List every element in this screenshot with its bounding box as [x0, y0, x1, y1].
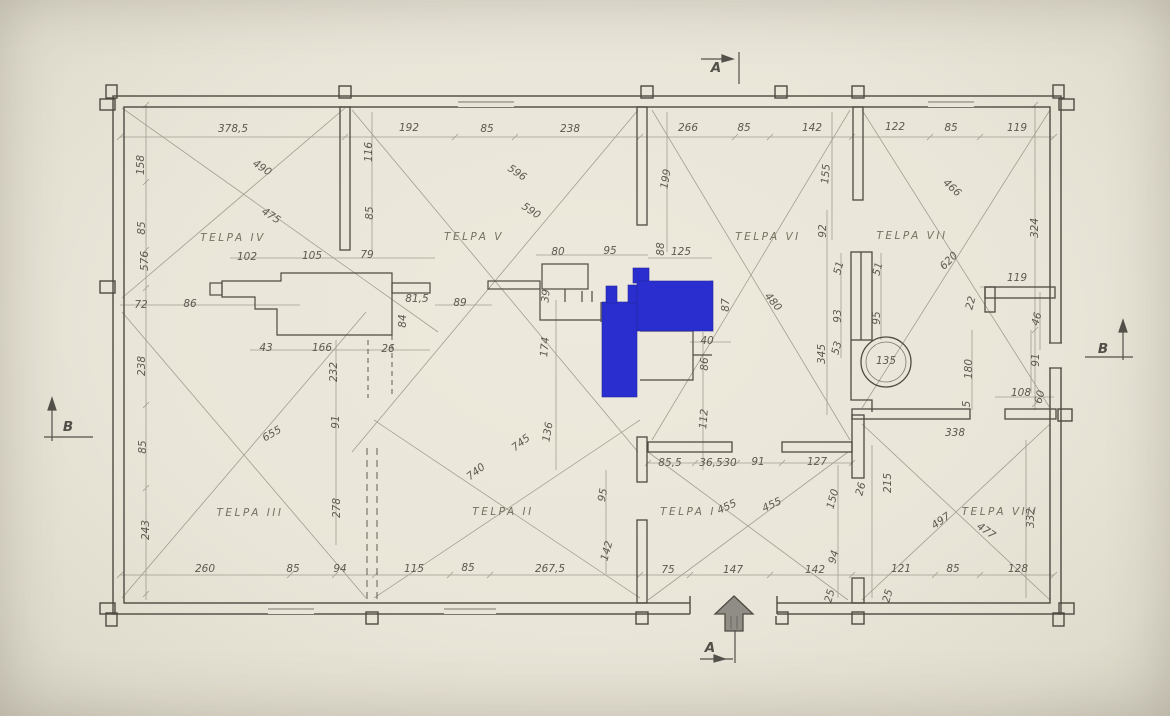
room-label: TELPA II — [472, 506, 533, 518]
dimension-label: 81,5 — [405, 293, 428, 305]
dimension-label: 108 — [1011, 387, 1031, 399]
dimension-label: 655 — [260, 424, 283, 444]
dimension-label: 51 — [831, 260, 846, 276]
dimension-label: 142 — [802, 122, 822, 134]
dimension-label: 590 — [519, 201, 542, 222]
dimension-label: 122 — [885, 121, 905, 133]
room-label: TELPA VIII — [962, 506, 1039, 518]
dimension-label: 480 — [762, 290, 784, 313]
dimension-label: 39 — [539, 289, 552, 303]
dimension-label: 91 — [1030, 353, 1042, 366]
dimension-label: 85,5 — [658, 457, 681, 469]
dimension-label: 142 — [805, 564, 825, 576]
dimension-label: 119 — [1007, 272, 1027, 284]
dimension-label: 51 — [870, 261, 885, 277]
dimension-label: 85 — [364, 206, 376, 219]
dimension-label: 278 — [331, 498, 343, 518]
dimension-label: 85 — [136, 221, 148, 234]
dimension-label: 260 — [195, 563, 215, 575]
dimension-label: 85 — [461, 562, 474, 574]
dimension-label: 85 — [286, 563, 299, 575]
room-label: TELPA I — [660, 506, 716, 518]
dimension-label: 93 — [832, 309, 844, 322]
dimension-label: 86 — [699, 357, 711, 370]
dimension-label: 43 — [259, 342, 272, 354]
dimension-label: 26 — [853, 481, 868, 497]
dimension-label: 75 — [661, 564, 674, 576]
dimension-label: 243 — [140, 520, 152, 540]
room-label: TELPA VII — [876, 230, 947, 242]
dimension-label: 86 — [183, 298, 196, 310]
dimension-label: 267,5 — [535, 563, 565, 575]
dimension-label: 94 — [333, 563, 346, 575]
dimension-label: 91 — [330, 415, 342, 428]
dimension-label: 85 — [137, 440, 149, 453]
dimension-label: 87 — [720, 298, 732, 311]
dimension-label: 192 — [399, 122, 419, 134]
dimension-label: 150 — [825, 488, 842, 510]
dimension-label: 91 — [751, 456, 764, 468]
dimension-label: 490 — [250, 158, 273, 179]
section-letter: B — [1098, 341, 1108, 357]
dimension-label: 89 — [453, 297, 466, 309]
dimension-label: 180 — [963, 359, 975, 379]
dimension-label: 79 — [360, 249, 373, 261]
dimension-label: 455 — [715, 497, 738, 516]
dimension-label: 92 — [817, 224, 829, 237]
dimension-label: 85 — [737, 122, 750, 134]
dimension-label: 46 — [1029, 311, 1044, 327]
dimension-label: 25 — [822, 588, 837, 604]
dimension-label: 136 — [540, 421, 555, 443]
dimension-label: 85 — [480, 123, 493, 135]
dimension-label: 60 — [1032, 389, 1047, 405]
dimension-label: 324 — [1029, 218, 1041, 238]
dimension-label: 22 — [963, 295, 978, 311]
dimension-label: 232 — [328, 362, 340, 382]
dimension-label: 238 — [560, 123, 580, 135]
section-letter: B — [63, 419, 73, 435]
dimension-label: 497 — [929, 510, 952, 531]
dimension-label: 95 — [603, 245, 616, 257]
dimension-label: 95 — [596, 487, 610, 502]
dimension-label: 147 — [723, 564, 743, 576]
dimension-label: 740 — [464, 461, 487, 483]
section-letter: A — [705, 640, 715, 656]
drawing-sheet: 378,519285238266851421228511915885576728… — [0, 0, 1170, 716]
room-label: TELPA III — [216, 507, 283, 519]
dimension-label: 455 — [760, 495, 783, 514]
dimension-label: 142 — [599, 540, 616, 562]
dimension-label: 620 — [938, 250, 961, 273]
dimension-label: 5 — [961, 401, 973, 408]
dimension-label: 596 — [505, 163, 528, 184]
dimension-label: 158 — [135, 155, 147, 175]
section-letter: A — [711, 60, 721, 76]
dimension-label: 345 — [816, 344, 828, 364]
dimension-label: 26 — [381, 343, 394, 355]
dimension-label: 199 — [658, 168, 673, 190]
dimension-label: 80 — [551, 246, 564, 258]
dimension-label: 25 — [880, 588, 895, 604]
dimension-label: 115 — [404, 563, 424, 575]
dimension-label: 53 — [829, 340, 844, 356]
dimension-label: 95 — [871, 311, 883, 324]
dimension-label: 477 — [974, 520, 997, 541]
dimension-label: 475 — [259, 206, 282, 227]
dimension-label: 119 — [1007, 122, 1027, 134]
room-label: TELPA VI — [735, 231, 801, 243]
dimension-label: 116 — [363, 142, 375, 162]
dimension-label: 36,5 — [699, 457, 722, 469]
dimension-label: 112 — [697, 408, 711, 429]
dimension-label: 135 — [876, 355, 896, 367]
dimension-label: 745 — [509, 432, 532, 454]
dimension-label: 30 — [723, 457, 736, 469]
labels-layer: 378,519285238266851421228511915885576728… — [0, 0, 1170, 716]
dimension-label: 266 — [678, 122, 698, 134]
dimension-label: 466 — [941, 177, 964, 199]
dimension-label: 40 — [700, 335, 713, 347]
dimension-label: 127 — [807, 456, 827, 468]
dimension-label: 215 — [882, 473, 894, 493]
room-label: TELPA IV — [200, 232, 266, 244]
dimension-label: 84 — [397, 314, 409, 327]
dimension-label: 105 — [302, 250, 322, 262]
dimension-label: 166 — [312, 342, 332, 354]
dimension-label: 576 — [139, 251, 151, 271]
dimension-label: 85 — [946, 563, 959, 575]
dimension-label: 121 — [891, 563, 911, 575]
dimension-label: 125 — [671, 246, 691, 258]
dimension-label: 128 — [1008, 563, 1028, 575]
dimension-label: 94 — [826, 549, 841, 565]
dimension-label: 338 — [945, 427, 965, 439]
dimension-label: 85 — [944, 122, 957, 134]
dimension-label: 88 — [655, 242, 667, 255]
dimension-label: 72 — [134, 299, 147, 311]
dimension-label: 378,5 — [218, 123, 248, 135]
dimension-label: 155 — [819, 163, 833, 184]
dimension-label: 174 — [538, 336, 552, 357]
dimension-label: 102 — [237, 251, 257, 263]
room-label: TELPA V — [444, 231, 504, 243]
dimension-label: 238 — [136, 356, 148, 376]
